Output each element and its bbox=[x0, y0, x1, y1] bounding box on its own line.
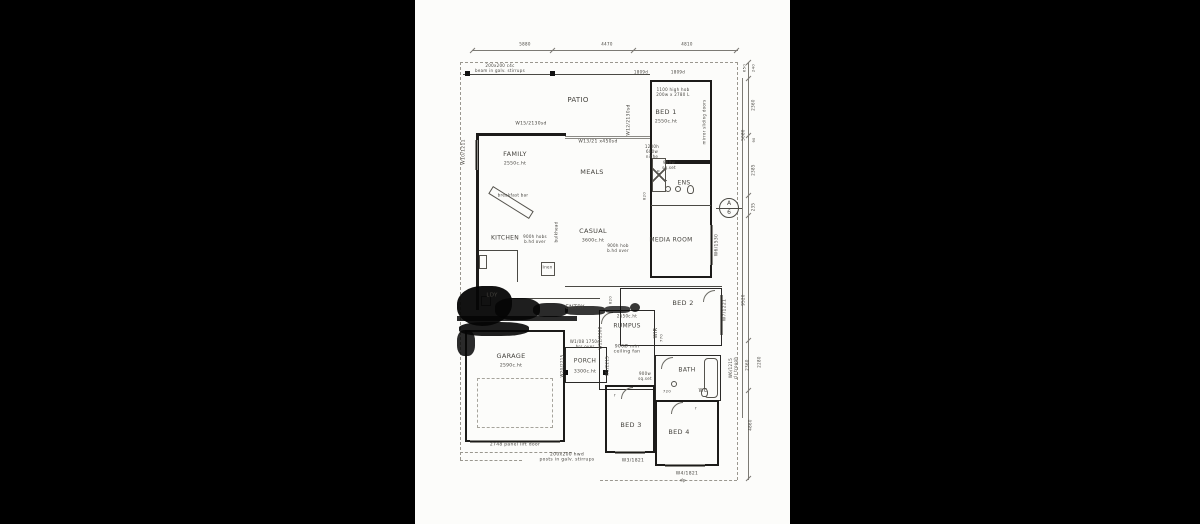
wall-porch bbox=[565, 347, 607, 383]
dim-top-1: 5880 bbox=[519, 43, 530, 48]
window-label-w4: W4/1821 bbox=[676, 471, 698, 476]
patio-post bbox=[465, 71, 470, 76]
ceiling-height-casual: 3600c.ht bbox=[582, 238, 604, 243]
room-label-media-room: MEDIA ROOM bbox=[649, 236, 692, 243]
dim-top-3: 4810 bbox=[681, 43, 692, 48]
section-marker: A 6 bbox=[719, 198, 739, 218]
room-label-rumpus: RUMPUS bbox=[613, 322, 640, 329]
section-marker-bottom: 6 bbox=[720, 209, 738, 216]
room-label-casual: CASUAL bbox=[579, 228, 607, 236]
dim-right-2360-upper: 2360 bbox=[752, 99, 757, 110]
window-label-w12-rumpus: W12/2308 bbox=[599, 327, 604, 350]
note-panel-lift-door: 2748 panel lift door bbox=[490, 442, 540, 447]
window-label-w7: W7/1221 bbox=[722, 299, 727, 321]
dim-right-2385: 2385 bbox=[752, 164, 757, 175]
room-label-patio: PATIO bbox=[567, 96, 588, 104]
window-size-1809d-right: 1809d bbox=[671, 71, 685, 76]
ink-smudge bbox=[605, 306, 630, 313]
black-border-left bbox=[0, 0, 415, 524]
ceiling-height-rumpus: 2550c.ht bbox=[617, 315, 637, 320]
ceiling-height-family: 2550c.ht bbox=[504, 161, 526, 166]
ceiling-height-garage: 2590c.ht bbox=[500, 363, 522, 368]
dim-right-5080: 5080 bbox=[742, 129, 747, 140]
window-label-w6-bath: W6/1215 clr trough bbox=[729, 357, 739, 379]
basin-ens-2 bbox=[675, 186, 681, 192]
window-label-w6-media: W6/1530 bbox=[714, 234, 719, 256]
note-robe-bed4: r bbox=[695, 407, 697, 412]
section-marker-top: A bbox=[720, 200, 738, 207]
wall-casual-bottom bbox=[565, 286, 722, 287]
note-bulkhead: bulkhead bbox=[555, 222, 560, 243]
note-posts: 200x200 hwd posts in galv. stirrups bbox=[540, 453, 595, 464]
door-size-820-hall: 820 bbox=[609, 296, 614, 304]
dim-right-9520: 9520 bbox=[742, 294, 747, 305]
note-niche: 1200h 600w niche bbox=[645, 145, 659, 159]
floor-plan-sheet: A 6 PATIOBED 12550c.htFAMILY2550c.htMEAL… bbox=[415, 0, 790, 524]
dim-right-650: 650 bbox=[743, 64, 748, 72]
eave-line-right bbox=[737, 62, 738, 480]
note-hob-casual: 900h hob b.hd over bbox=[607, 244, 629, 254]
ink-smudge bbox=[630, 303, 640, 312]
room-label-porch: PORCH bbox=[574, 357, 596, 364]
room-label-kitchen: KITCHEN bbox=[491, 234, 519, 241]
dimension-line-right-outer bbox=[748, 62, 749, 480]
note-sqset-ens: 900w sq.set bbox=[662, 161, 676, 171]
wall-media-divider bbox=[651, 205, 711, 206]
dim-right-240: 240 bbox=[752, 64, 757, 72]
wall-family-top bbox=[476, 133, 566, 136]
note-hobs-kitchen: 900h hobs b.hd over bbox=[523, 235, 547, 245]
window-label-w12: W12/2130sd bbox=[626, 104, 631, 135]
window-label-w10: W10/1211 bbox=[461, 139, 466, 165]
window-label-w20: W20/2215 bbox=[561, 355, 566, 378]
dim-right-2360-lower: 2360 bbox=[746, 359, 751, 370]
breakfast-bar-bench bbox=[488, 186, 533, 219]
room-label-garage: GARAGE bbox=[496, 353, 525, 361]
note-beam: 200x200 c4c beam in galv. stirrups bbox=[475, 64, 525, 74]
ceiling-height-bed1: 2550c.ht bbox=[655, 119, 677, 124]
dim-right-90: 90 bbox=[752, 137, 756, 142]
window-bed4 bbox=[665, 464, 705, 467]
door-size-820-ens: 820 bbox=[643, 192, 648, 200]
basin-bath bbox=[671, 381, 677, 387]
note-sqset-hall: 900w sq.set bbox=[638, 372, 652, 382]
dim-tick bbox=[746, 476, 752, 482]
dim-right-2280: 2280 bbox=[758, 356, 763, 367]
room-label-bed4: BED 4 bbox=[668, 429, 689, 437]
eave-line-bottom-right bbox=[600, 480, 737, 481]
room-label-bed3: BED 3 bbox=[620, 422, 641, 430]
window-label-w15: W15/2130sd bbox=[515, 121, 546, 126]
screenshot-stage: A 6 PATIOBED 12550c.htFAMILY2550c.htMEAL… bbox=[0, 0, 1200, 524]
room-label-ens: ENS bbox=[678, 179, 691, 186]
window-bed3 bbox=[615, 451, 645, 454]
note-linen: linen bbox=[541, 266, 552, 271]
window-label-w2: W2/2215 bbox=[606, 356, 611, 376]
kitchen-hob bbox=[479, 255, 487, 269]
door-size-770: 770 bbox=[660, 334, 665, 342]
note-robe-bed3: r bbox=[614, 394, 616, 399]
ink-smudge bbox=[533, 303, 568, 317]
dim-tick bbox=[734, 48, 740, 54]
eave-line-left bbox=[460, 62, 461, 460]
kitchen-bench-return bbox=[517, 250, 518, 282]
dim-right-235: 235 bbox=[752, 203, 757, 212]
dim-right-4860: 4860 bbox=[749, 419, 754, 430]
room-label-laundry: LDY bbox=[486, 293, 497, 300]
room-label-family: FAMILY bbox=[503, 151, 527, 159]
black-border-right bbox=[790, 0, 1200, 524]
window-label-w13: W13/21 x450sd bbox=[578, 139, 617, 144]
basin-ens-1 bbox=[665, 186, 671, 192]
window-label-w3: W3/1821 bbox=[622, 458, 644, 463]
ink-smudge bbox=[457, 330, 475, 356]
window-label-porch: W1/08 1750d hrs over bbox=[570, 340, 600, 350]
note-downpipe: dp bbox=[680, 479, 686, 484]
door-size-720: 720 bbox=[663, 390, 671, 395]
room-label-bed2: BED 2 bbox=[672, 300, 693, 308]
dim-top-2: 4470 bbox=[601, 43, 612, 48]
note-hob-bed1: 1100 high hob 200w x 2780 L bbox=[656, 88, 689, 98]
ink-smudge bbox=[457, 316, 577, 321]
window-media bbox=[710, 225, 713, 265]
room-label-bed1: BED 1 bbox=[655, 109, 676, 117]
note-shower: sh bbox=[657, 169, 662, 174]
patio-post bbox=[550, 71, 555, 76]
window-family bbox=[475, 140, 478, 170]
ceiling-height-porch: 3300c.ht bbox=[574, 369, 596, 374]
room-label-wc: WC bbox=[698, 388, 707, 394]
window-size-1809d-left: 1809d bbox=[634, 71, 648, 76]
garage-slab-outline bbox=[477, 378, 553, 428]
room-label-bath: BATH bbox=[678, 366, 695, 373]
dimension-line-top bbox=[472, 50, 738, 51]
patio-beam-line bbox=[463, 74, 650, 75]
note-ceiling-fan: 900Ø min ceiling fan bbox=[614, 345, 641, 356]
note-mirror-doors: mirror sliding doors bbox=[703, 100, 708, 145]
eave-line-bottom-left bbox=[460, 460, 522, 461]
note-breakfast-bar: breakfast bar bbox=[498, 194, 529, 199]
room-label-meals: MEALS bbox=[580, 169, 603, 177]
kitchen-bench-edge bbox=[479, 250, 517, 251]
room-label-entry: ENTRY bbox=[565, 305, 584, 312]
